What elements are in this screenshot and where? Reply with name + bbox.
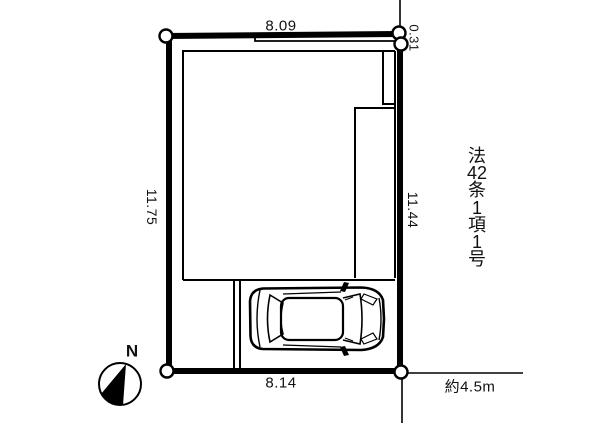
building-outline xyxy=(183,51,395,280)
site-plan-drawing xyxy=(0,0,600,423)
dimension-bottom-label: 8.14 xyxy=(265,376,296,391)
dimension-top-label: 8.09 xyxy=(265,19,296,34)
car-icon xyxy=(250,282,384,356)
car-rear-bumper-line xyxy=(257,290,260,347)
car-headlight-bottom xyxy=(361,333,377,344)
boundary-corner-markers xyxy=(160,27,408,379)
north-label: N xyxy=(126,343,138,360)
compass xyxy=(99,363,141,406)
dimension-right-label: 11.44 xyxy=(406,192,420,229)
parking-space-lines xyxy=(234,281,240,368)
plot-boundary xyxy=(166,34,401,372)
corner-marker-bottom-right xyxy=(395,366,408,379)
car-front-bumper-line xyxy=(379,298,381,340)
corner-marker-top-left xyxy=(160,30,173,43)
dimension-left-label: 11.75 xyxy=(145,189,159,226)
site-plan: 8.09 0.31 11.75 11.44 8.14 約4.5m N 法42条1… xyxy=(0,0,600,423)
dimension-top-right-label: 0.31 xyxy=(408,24,421,51)
car-windshield xyxy=(343,294,362,344)
regulation-text: 法42条1項1号 xyxy=(462,148,492,268)
building-notch xyxy=(383,51,395,104)
road-width-label: 約4.5m xyxy=(445,380,496,395)
car-mirrors xyxy=(340,282,349,356)
car-side-lines xyxy=(283,292,341,347)
building-top-left-edge xyxy=(183,51,395,280)
car-headlight-top xyxy=(361,294,377,305)
corner-marker-bottom-left xyxy=(161,365,174,378)
car-roof xyxy=(281,298,343,340)
building-wing-edge xyxy=(355,108,395,278)
car-wipers xyxy=(345,297,353,341)
